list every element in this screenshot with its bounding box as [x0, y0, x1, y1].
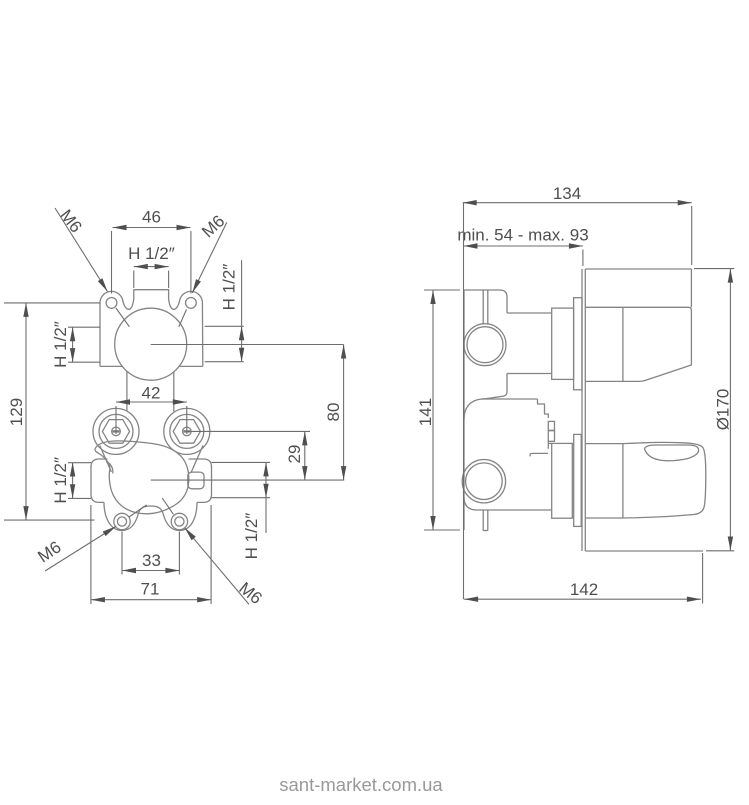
- svg-text:H 1/2″: H 1/2″: [242, 513, 261, 560]
- svg-text:sant-market.com.ua: sant-market.com.ua: [279, 774, 443, 795]
- svg-text:H 1/2″: H 1/2″: [51, 457, 70, 504]
- svg-text:134: 134: [553, 184, 581, 203]
- svg-text:M6: M6: [56, 206, 86, 236]
- svg-text:80: 80: [324, 403, 343, 422]
- svg-text:141: 141: [416, 398, 435, 426]
- svg-text:M6: M6: [198, 211, 228, 241]
- svg-text:29: 29: [285, 445, 304, 464]
- svg-text:Ø170: Ø170: [714, 389, 733, 431]
- svg-text:H 1/2″: H 1/2″: [128, 244, 175, 263]
- svg-text:42: 42: [142, 384, 161, 403]
- svg-text:129: 129: [7, 398, 26, 426]
- svg-text:min. 54 - max. 93: min. 54 - max. 93: [457, 226, 588, 245]
- svg-text:H 1/2″: H 1/2″: [220, 264, 239, 311]
- svg-text:142: 142: [570, 580, 598, 599]
- svg-text:H 1/2″: H 1/2″: [51, 321, 70, 368]
- svg-text:71: 71: [141, 580, 160, 599]
- svg-text:33: 33: [142, 551, 161, 570]
- svg-text:46: 46: [142, 208, 161, 227]
